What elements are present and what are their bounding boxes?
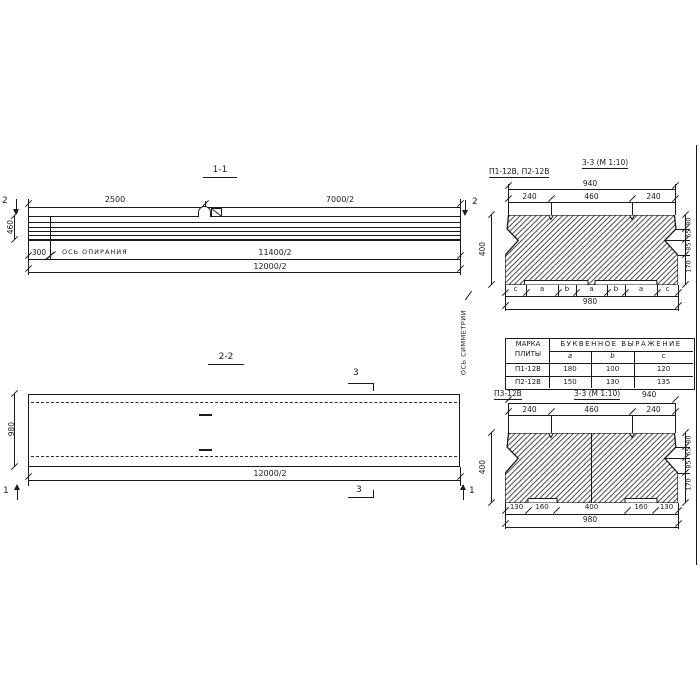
table-cell-b: 130: [591, 379, 634, 387]
table-cell-a: 150: [549, 379, 591, 387]
dim-line: [508, 189, 675, 190]
hidden-edge-dashed-line: [31, 456, 457, 457]
section-mark-2-right: 2: [472, 198, 478, 208]
extension-line: [678, 503, 679, 529]
dim-line: [505, 309, 678, 310]
slab-line: [28, 231, 460, 232]
bottom-dim-label: 400: [556, 504, 627, 512]
dim-tick: [488, 499, 495, 506]
lifting-loop-icon: [198, 206, 211, 217]
height-dim-line: [491, 215, 492, 285]
table-grid-line: [506, 363, 693, 364]
height-dim-label: 460: [7, 215, 15, 239]
dim-label-240: 240: [508, 193, 551, 201]
dim-line: [505, 527, 678, 528]
section-mark-tick: [373, 383, 374, 391]
extension-line: [460, 199, 461, 275]
dim-label-940: 940: [642, 391, 656, 399]
section-mark-tick: [373, 490, 374, 498]
slab-line: [28, 227, 460, 228]
dim-label-240: 240: [632, 406, 675, 414]
dim-line: [28, 259, 460, 260]
section-mark-line: [348, 383, 374, 384]
extension-line: [632, 415, 633, 433]
table-header-expression: БУКВЕННОЕ ВЫРАЖЕНИЕ: [549, 341, 693, 349]
arrow-up-icon: [14, 484, 20, 490]
dim-tick: [488, 281, 495, 288]
table-header-mark: МАРКА: [508, 341, 548, 349]
segment-letter: a: [576, 286, 607, 294]
hidden-edge-dashed-line: [31, 402, 457, 403]
dim-label-940: 940: [555, 180, 625, 188]
section-outline: [505, 215, 678, 285]
dim-tick: [682, 499, 689, 506]
frame-border-line: [696, 145, 697, 565]
dim-line: [28, 480, 460, 481]
support-axis-label: ОСЬ ОПИРАНИЯ: [62, 249, 128, 256]
dim-label-980: 980: [555, 298, 625, 306]
right-dim-label: 170: [685, 257, 692, 277]
extension-line: [675, 403, 676, 433]
section-mark-2-left: 2: [2, 197, 8, 207]
right-dim-label: 170: [685, 475, 692, 495]
slab-line: [28, 222, 460, 223]
right-dim-label: 85: [685, 239, 692, 255]
section-3-3-bottom-title: 3-3 (М 1:10): [574, 390, 620, 400]
dim-tick: [488, 429, 495, 436]
section-mark-3-bottom: 3: [356, 486, 362, 496]
section-mark-1-left: 1: [3, 487, 9, 497]
dim-line: [28, 207, 460, 208]
symmetry-axis-label: ОСЬ СИММЕТРИИ: [460, 298, 467, 388]
section-1-1-title: 1-1: [203, 166, 237, 178]
dim-label-11400-2: 11400/2: [230, 249, 320, 258]
leader-slash: [465, 291, 472, 301]
center-dash: [199, 414, 212, 416]
arrow-up-icon: [460, 484, 466, 490]
section-3-3-top-label: П1-12В, П2-12В: [489, 168, 549, 178]
table-cell-mark: П2-12В: [508, 379, 548, 387]
table-col-header-b: b: [591, 353, 634, 361]
dim-label-240: 240: [632, 193, 675, 201]
dim-tick: [682, 281, 689, 288]
section-mark-line: [348, 497, 374, 498]
height-dim-label-400: 400: [479, 454, 487, 480]
section-3-3-top-title: 3-3 (М 1:10): [582, 159, 628, 169]
segment-letter: a: [625, 286, 657, 294]
slab-line: [28, 235, 460, 236]
height-dim-label-400: 400: [479, 236, 487, 262]
dim-line: [508, 202, 675, 203]
dim-tick: [11, 390, 18, 397]
arrow-down-icon: [462, 210, 468, 216]
section-2-2-title: 2-2: [208, 353, 244, 365]
right-dim-label: 85: [685, 457, 692, 473]
bottom-recess: [524, 280, 588, 285]
table-cell-a: 180: [549, 366, 591, 374]
dim-line: [508, 415, 675, 416]
dim-label-460: 460: [551, 406, 632, 414]
dim-label-12000-2: 12000/2: [225, 263, 315, 272]
dim-label-460: 460: [551, 193, 632, 201]
section-mark-3-top: 3: [353, 369, 359, 379]
dim-line: [508, 403, 675, 404]
extension-line: [551, 415, 552, 433]
dim-label-2500: 2500: [50, 196, 180, 205]
bottom-dim-label: 160: [528, 504, 556, 512]
extension-line: [551, 202, 552, 215]
center-dash: [199, 449, 212, 451]
letter-values-table: МАРКА ПЛИТЫ БУКВЕННОЕ ВЫРАЖЕНИЕ a b c П1…: [505, 338, 695, 390]
dim-line: [28, 272, 460, 273]
drawing-canvas: 1-1 2500 7000/2 2 2: [0, 0, 700, 700]
dim-label-7000-2: 7000/2: [270, 196, 410, 205]
extension-line: [678, 285, 679, 311]
cross-section-p3: [505, 433, 678, 503]
width-dim-label-980: 980: [8, 416, 16, 442]
segment-letter: a: [526, 286, 558, 294]
table-col-header-a: a: [549, 353, 591, 361]
dim-tick: [672, 396, 679, 403]
height-dim-line: [491, 433, 492, 503]
slab-top-edge: [28, 216, 460, 217]
cross-section-p1-p2: [505, 215, 678, 285]
dim-tick: [11, 463, 18, 470]
extension-line: [632, 202, 633, 215]
table-grid-line: [506, 376, 693, 377]
dim-tick: [488, 211, 495, 218]
table-col-header-c: c: [634, 353, 693, 361]
table-cell-c: 120: [634, 366, 693, 374]
table-header-mark: ПЛИТЫ: [508, 351, 548, 359]
extension-line: [28, 199, 29, 275]
table-cell-c: 135: [634, 379, 693, 387]
table-cell-mark: П1-12В: [508, 366, 548, 374]
dim-label-240: 240: [508, 406, 551, 414]
dim-label-12000-2: 12000/2: [225, 470, 315, 479]
dim-label-980: 980: [555, 516, 625, 524]
section-mark-1-right: 1: [469, 487, 475, 497]
bottom-dim-label: 160: [627, 504, 655, 512]
slab-bottom-edge: [28, 239, 460, 241]
table-cell-b: 100: [591, 366, 634, 374]
